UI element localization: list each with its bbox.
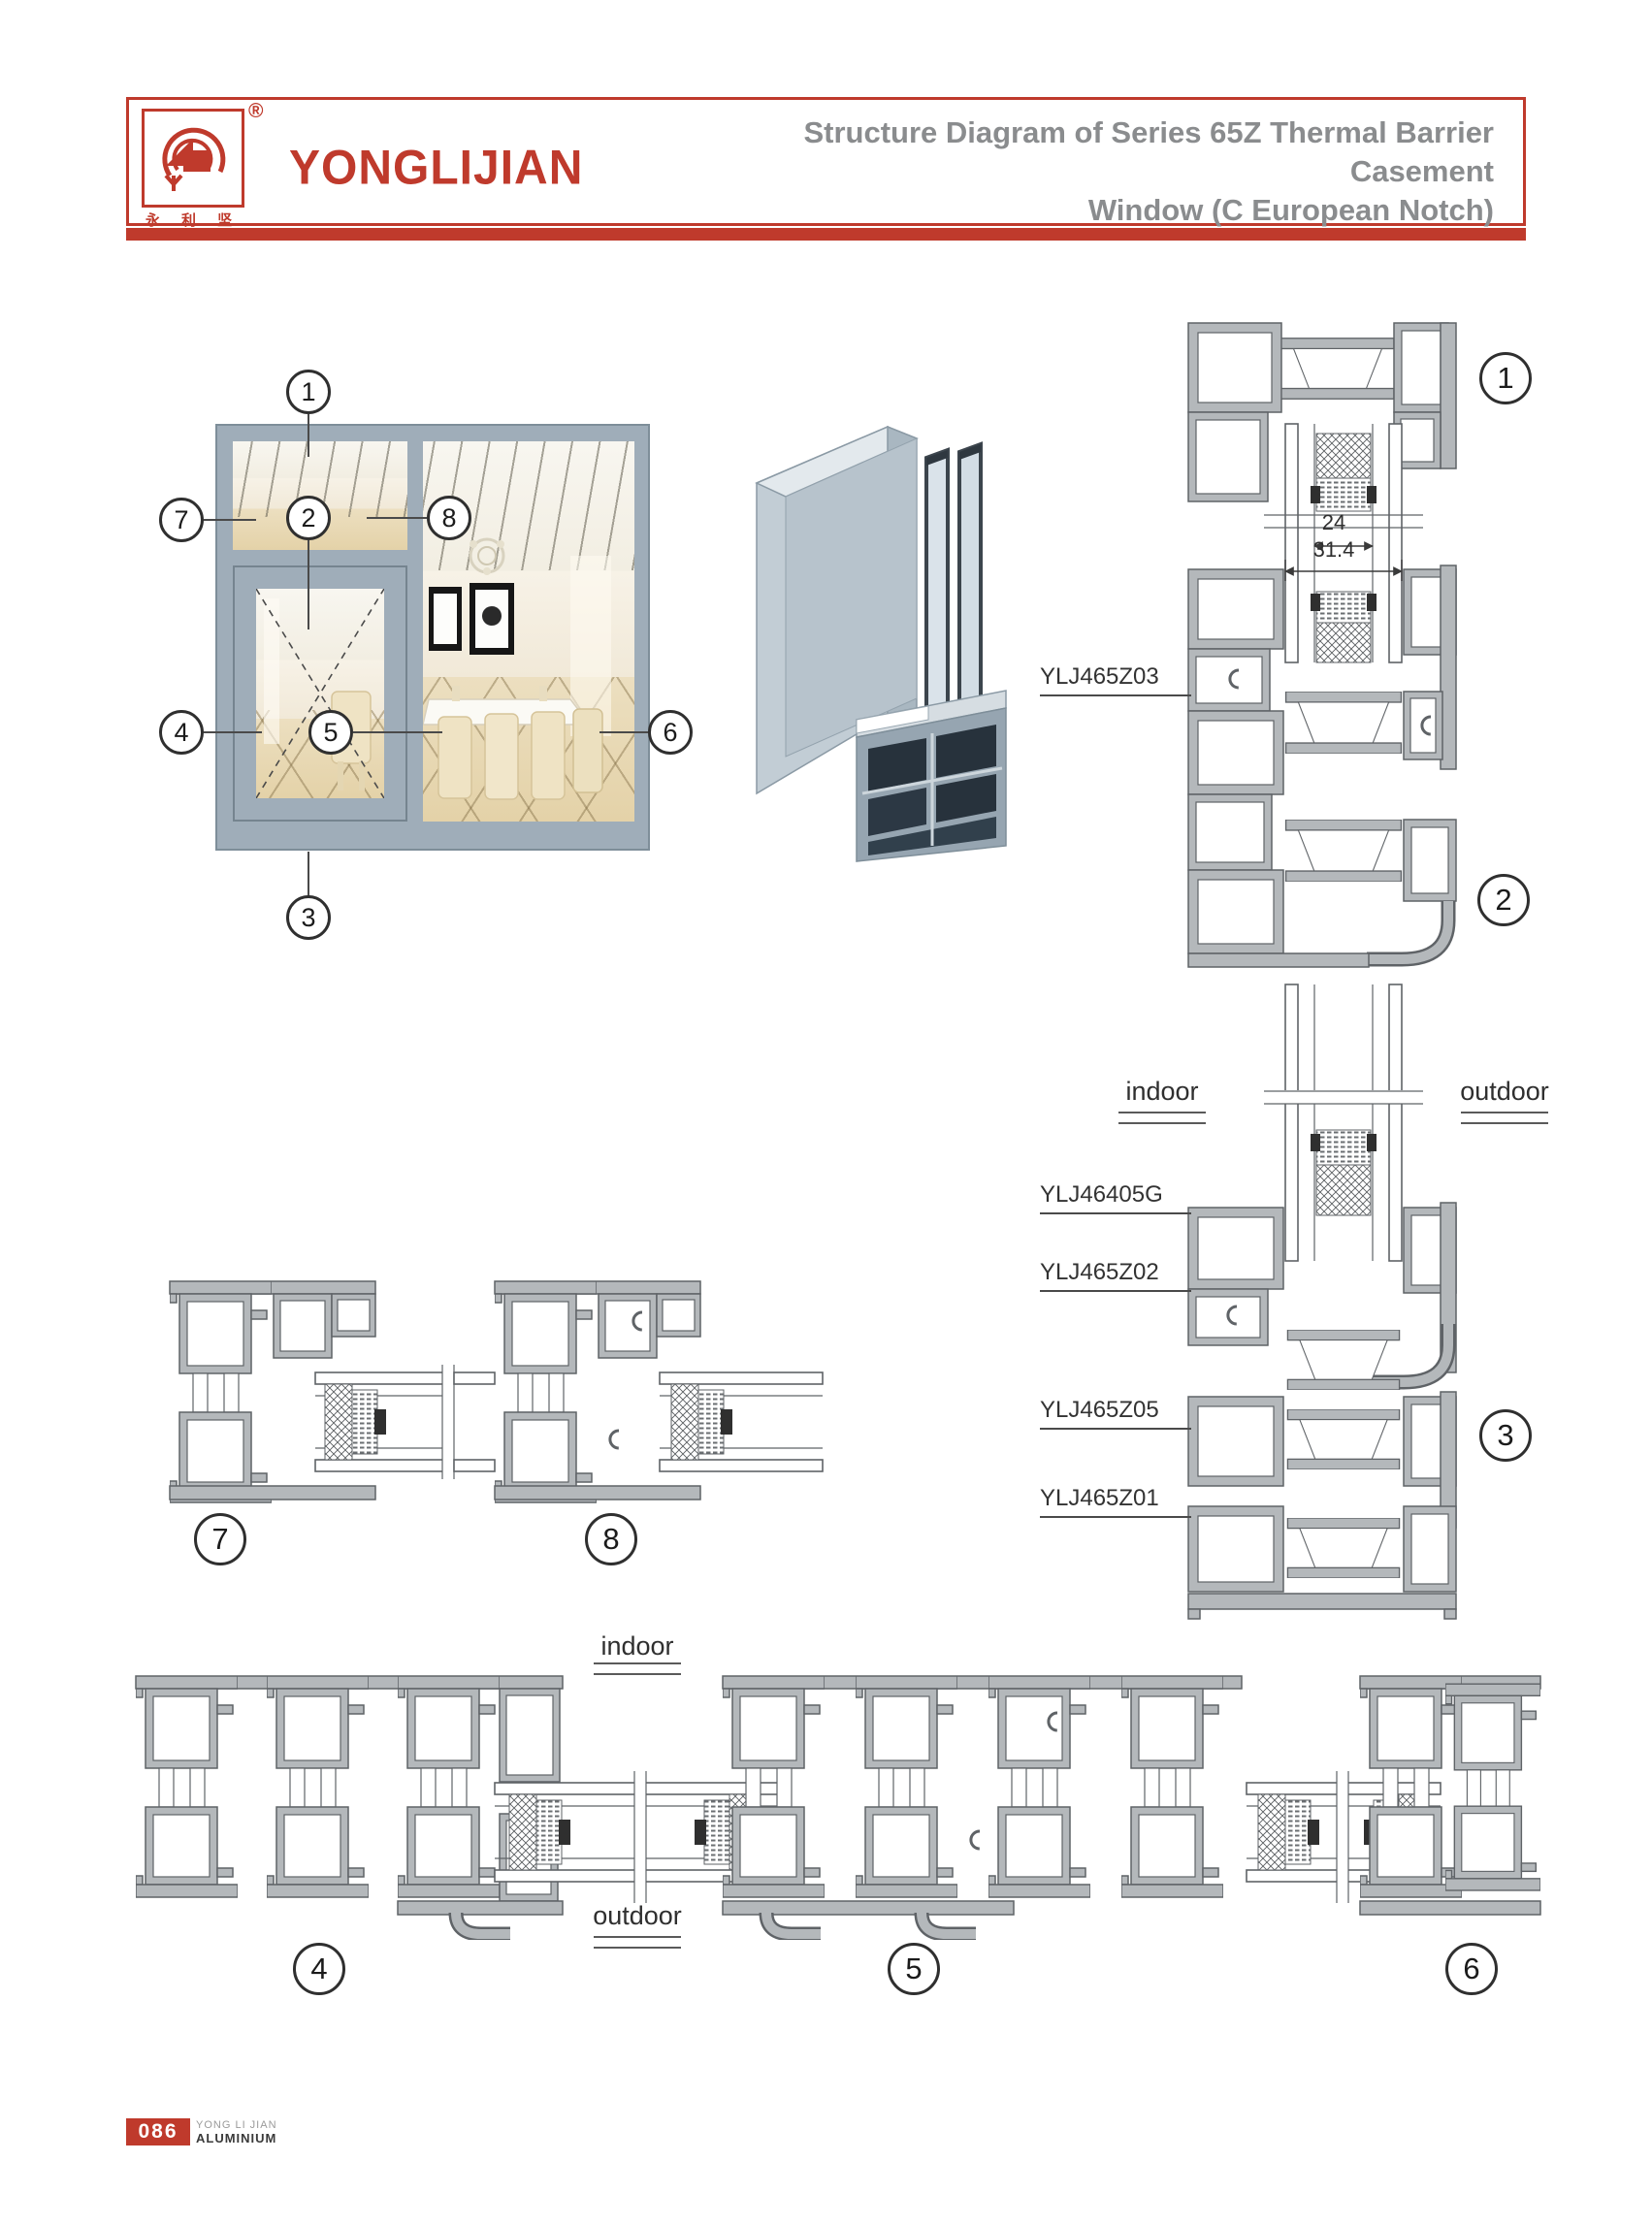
indoor-label-right: indoor [1085,1077,1240,1107]
profile-label-z02: YLJ465Z02 [1040,1259,1191,1292]
section-circle-3: 3 [1479,1409,1532,1462]
section-circle-4: 4 [293,1943,345,1995]
yonglijian-logo-icon [145,112,242,205]
horizontal-sections-4-5-6 [126,1668,1552,1940]
brand-name: YONGLIJIAN [289,141,583,196]
dim-overall: 31.4 [1288,537,1379,563]
callout-6: 6 [648,710,693,755]
profile-label-z03: YLJ465Z03 [1040,663,1191,696]
brand-chinese: 永 利 坚 [138,210,248,230]
profile-label-g05: YLJ46405G [1040,1181,1191,1214]
window-illustration [215,424,650,851]
callout-4: 4 [159,710,204,755]
catalog-page: ® 永 利 坚 YONGLIJIAN Structure Diagram of … [0,0,1652,2226]
page-number: 086 [126,2118,190,2145]
callout-5: 5 [308,710,353,755]
outdoor-label-bottom: outdoor [560,1901,715,1931]
indoor-underline-right [1118,1112,1206,1124]
indoor-label-bottom: indoor [560,1631,715,1661]
section-circle-1: 1 [1479,352,1532,404]
leader-line-1 [308,414,309,457]
footer-division: ALUMINIUM [196,2132,277,2145]
sash-glass [256,589,384,798]
footer-company: YONG LI JIAN ALUMINIUM [196,2118,277,2145]
callout-7: 7 [159,498,204,542]
dim-glass-unit: 24 [1290,510,1377,535]
profile-label-z05: YLJ465Z05 [1040,1397,1191,1430]
leader-line-8 [367,517,427,519]
section-circle-2: 2 [1477,874,1530,926]
outdoor-label-right: outdoor [1427,1077,1582,1107]
section-circle-8: 8 [585,1513,637,1565]
brand-logo [142,109,244,208]
indoor-underline-bottom [594,1662,681,1675]
page-title: Structure Diagram of Series 65Z Thermal … [669,113,1494,230]
profile-label-z01: YLJ465Z01 [1040,1485,1191,1518]
profile-3d-render [742,407,1019,863]
callout-8: 8 [427,496,471,540]
section-circle-5: 5 [888,1943,940,1995]
horizontal-sections-7-8 [155,1275,825,1513]
callout-3: 3 [286,895,331,940]
footer: 086 YONG LI JIAN ALUMINIUM [126,2118,277,2145]
page-title-line2: Window (C European Notch) [669,191,1494,230]
section-circle-7: 7 [194,1513,246,1565]
outdoor-underline-right [1461,1112,1548,1124]
section-circle-6: 6 [1445,1943,1498,1995]
leader-line-2 [308,540,309,629]
sash-scene-furniture [256,589,384,798]
leader-line-4 [204,731,262,733]
registered-mark: ® [248,100,263,123]
leader-line-5 [353,731,442,733]
callout-1: 1 [286,370,331,414]
outdoor-underline-bottom [594,1936,681,1949]
callout-2: 2 [286,496,331,540]
casement-sash [233,565,407,822]
leader-line-3 [308,852,309,896]
page-title-line1: Structure Diagram of Series 65Z Thermal … [669,113,1494,191]
leader-line-7 [204,519,256,521]
leader-line-6 [599,731,650,733]
